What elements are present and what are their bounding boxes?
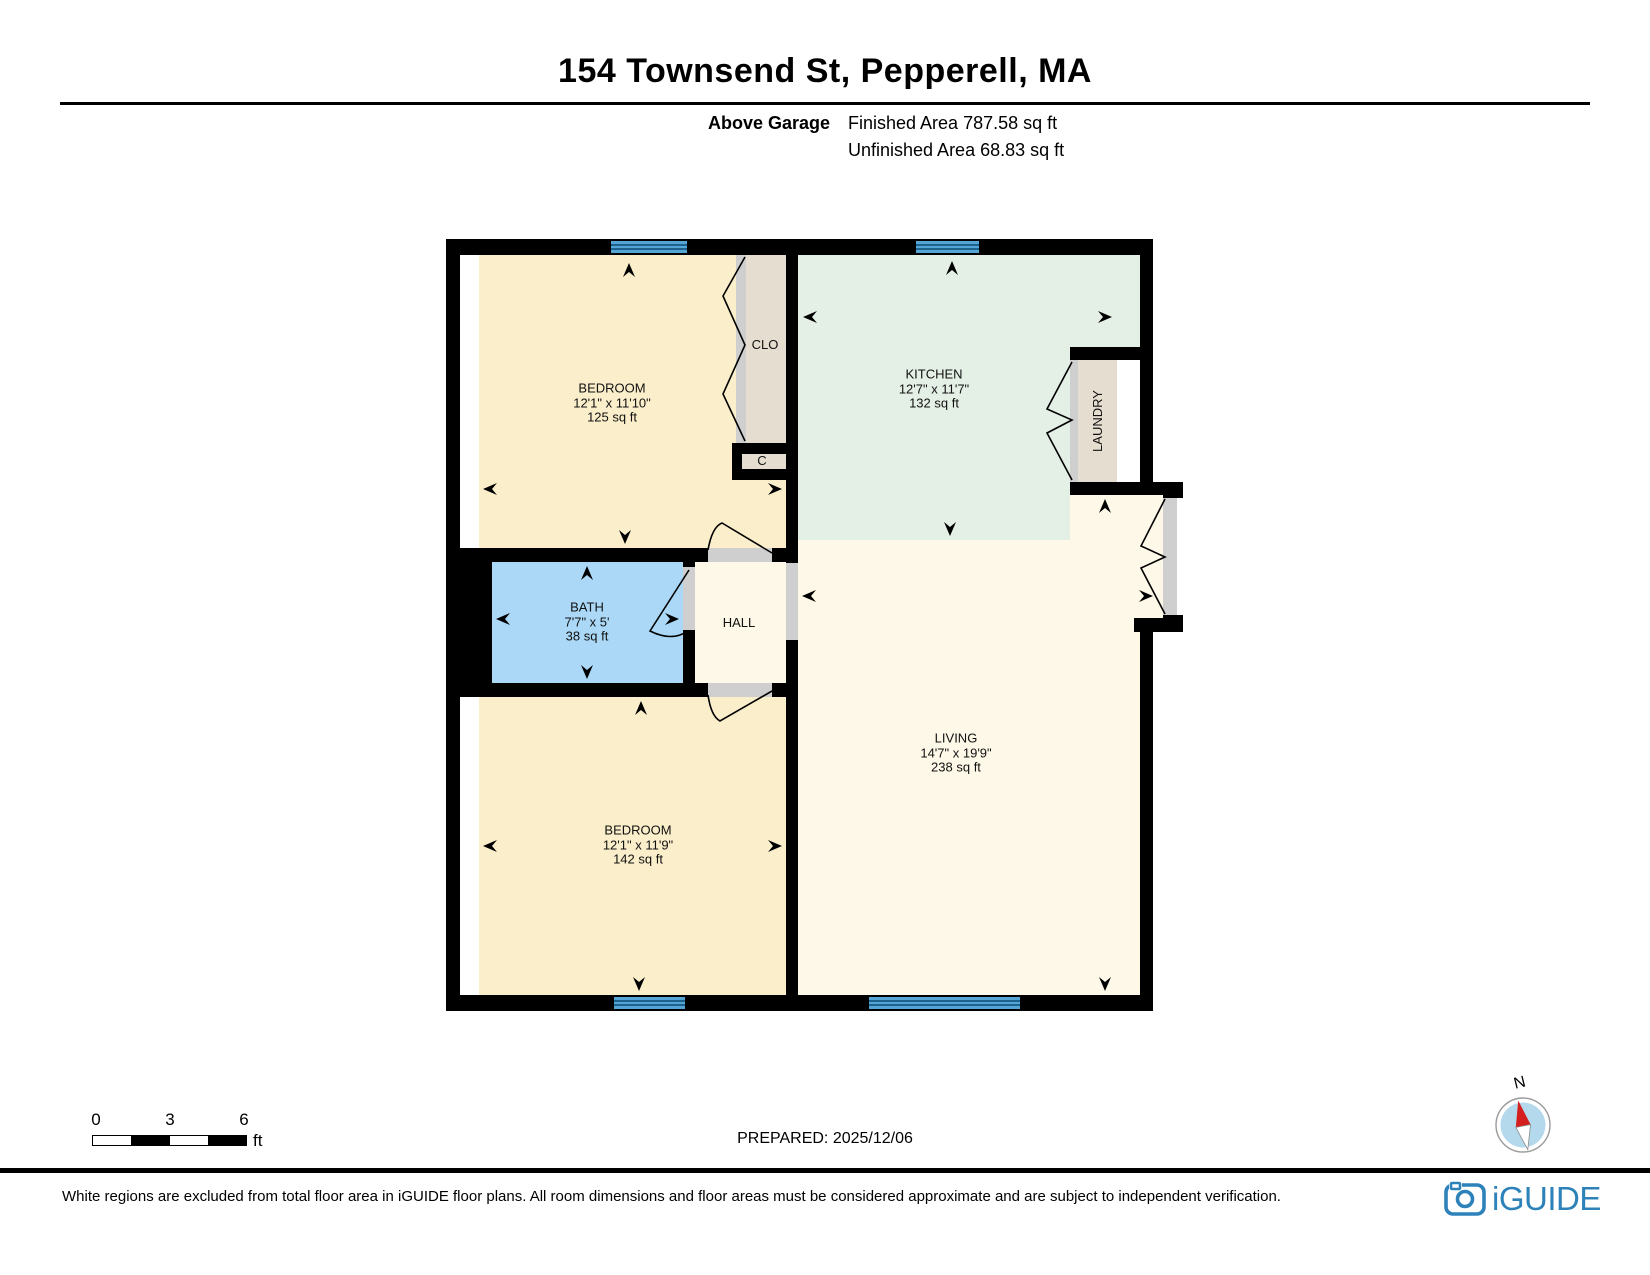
room-name: BEDROOM — [603, 823, 673, 838]
room-label-bedroom-bottom: BEDROOM 12'1" x 11'9" 142 sq ft — [603, 823, 673, 867]
title-divider — [60, 102, 1590, 105]
footer-divider — [0, 1168, 1650, 1173]
room-dims: 7'7" x 5' — [565, 615, 610, 630]
room-area: 38 sq ft — [565, 629, 610, 644]
room-name: C — [757, 454, 766, 469]
room-label-kitchen: KITCHEN 12'7" x 11'7" 132 sq ft — [899, 367, 969, 411]
door-swing — [708, 691, 772, 721]
door-swing — [708, 523, 772, 553]
room-area: 142 sq ft — [603, 852, 673, 867]
room-name: BEDROOM — [573, 381, 651, 396]
room-name: LAUNDRY — [1091, 390, 1106, 452]
room-name: KITCHEN — [899, 367, 969, 382]
room-name: LIVING — [920, 731, 991, 746]
room-name: HALL — [723, 616, 756, 631]
bifold-door — [723, 257, 745, 441]
unfinished-area: Unfinished Area 68.83 sq ft — [848, 140, 1064, 161]
room-dims: 14'7" x 19'9" — [920, 746, 991, 761]
room-name: BATH — [565, 600, 610, 615]
room-area: 238 sq ft — [920, 760, 991, 775]
iguide-logo-text: iGUIDE — [1492, 1180, 1601, 1218]
scale-label-6: 6 — [239, 1110, 248, 1130]
door-swing — [650, 570, 689, 637]
disclaimer-text: White regions are excluded from total fl… — [62, 1188, 1281, 1205]
room-label-bedroom-top: BEDROOM 12'1" x 11'10" 125 sq ft — [573, 381, 651, 425]
room-area: 132 sq ft — [899, 396, 969, 411]
room-area: 125 sq ft — [573, 410, 651, 425]
scale-label-3: 3 — [165, 1110, 174, 1130]
compass-north-label: N — [1512, 1073, 1527, 1092]
room-dims: 12'1" x 11'10" — [573, 396, 651, 411]
compass-icon: N — [1488, 1072, 1560, 1156]
finished-area: Finished Area 787.58 sq ft — [848, 113, 1057, 134]
room-label-closet-small: C — [757, 454, 766, 469]
room-label-living: LIVING 14'7" x 19'9" 238 sq ft — [920, 731, 991, 775]
room-label-laundry: LAUNDRY — [1091, 390, 1106, 452]
floor-label: Above Garage — [430, 113, 830, 134]
scale-label-0: 0 — [91, 1110, 100, 1130]
floor-plan: BEDROOM 12'1" x 11'10" 125 sq ft CLO C K… — [446, 239, 1183, 1011]
bifold-door — [1047, 362, 1072, 480]
plan-symbols — [446, 239, 1183, 1011]
page-title: 154 Townsend St, Pepperell, MA — [0, 52, 1650, 91]
room-label-closet: CLO — [752, 338, 779, 353]
room-dims: 12'7" x 11'7" — [899, 382, 969, 397]
room-label-hall: HALL — [723, 616, 756, 631]
prepared-date: PREPARED: 2025/12/06 — [0, 1130, 1650, 1148]
room-name: CLO — [752, 338, 779, 353]
iguide-logo-icon — [1443, 1181, 1489, 1217]
room-dims: 12'1" x 11'9" — [603, 838, 673, 853]
room-label-bath: BATH 7'7" x 5' 38 sq ft — [565, 600, 610, 644]
